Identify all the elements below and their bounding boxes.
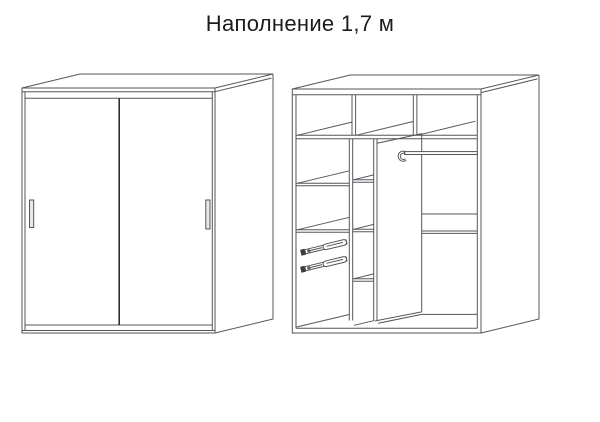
interior-top-panel (292, 75, 539, 93)
drawer-slide-1 (300, 239, 347, 256)
drawer-slide-2 (300, 256, 347, 273)
top-shelf (296, 121, 477, 139)
interior-front-frame (292, 89, 481, 333)
partition-left (349, 139, 352, 321)
wardrobe-interior-view (292, 75, 539, 333)
middle-shelf-3 (353, 274, 374, 281)
bottom-panel (297, 314, 478, 327)
interior-side-panel (481, 75, 539, 333)
middle-shelf-1 (353, 175, 374, 182)
middle-shelf-2 (353, 224, 374, 231)
top-divider-1 (352, 95, 356, 136)
left-shelf-1 (296, 171, 349, 186)
cabinet-side-panel (215, 74, 273, 333)
hanging-rod (398, 151, 477, 161)
top-divider-2 (413, 95, 417, 136)
partition-center (374, 134, 422, 321)
door-handle-left (30, 200, 34, 228)
door-handle-right (206, 200, 210, 229)
wardrobe-diagram (0, 0, 600, 422)
cabinet-top-panel (22, 74, 273, 92)
wardrobe-closed-view (22, 74, 273, 333)
right-shelf (422, 214, 478, 233)
left-shelf-2 (296, 217, 349, 232)
